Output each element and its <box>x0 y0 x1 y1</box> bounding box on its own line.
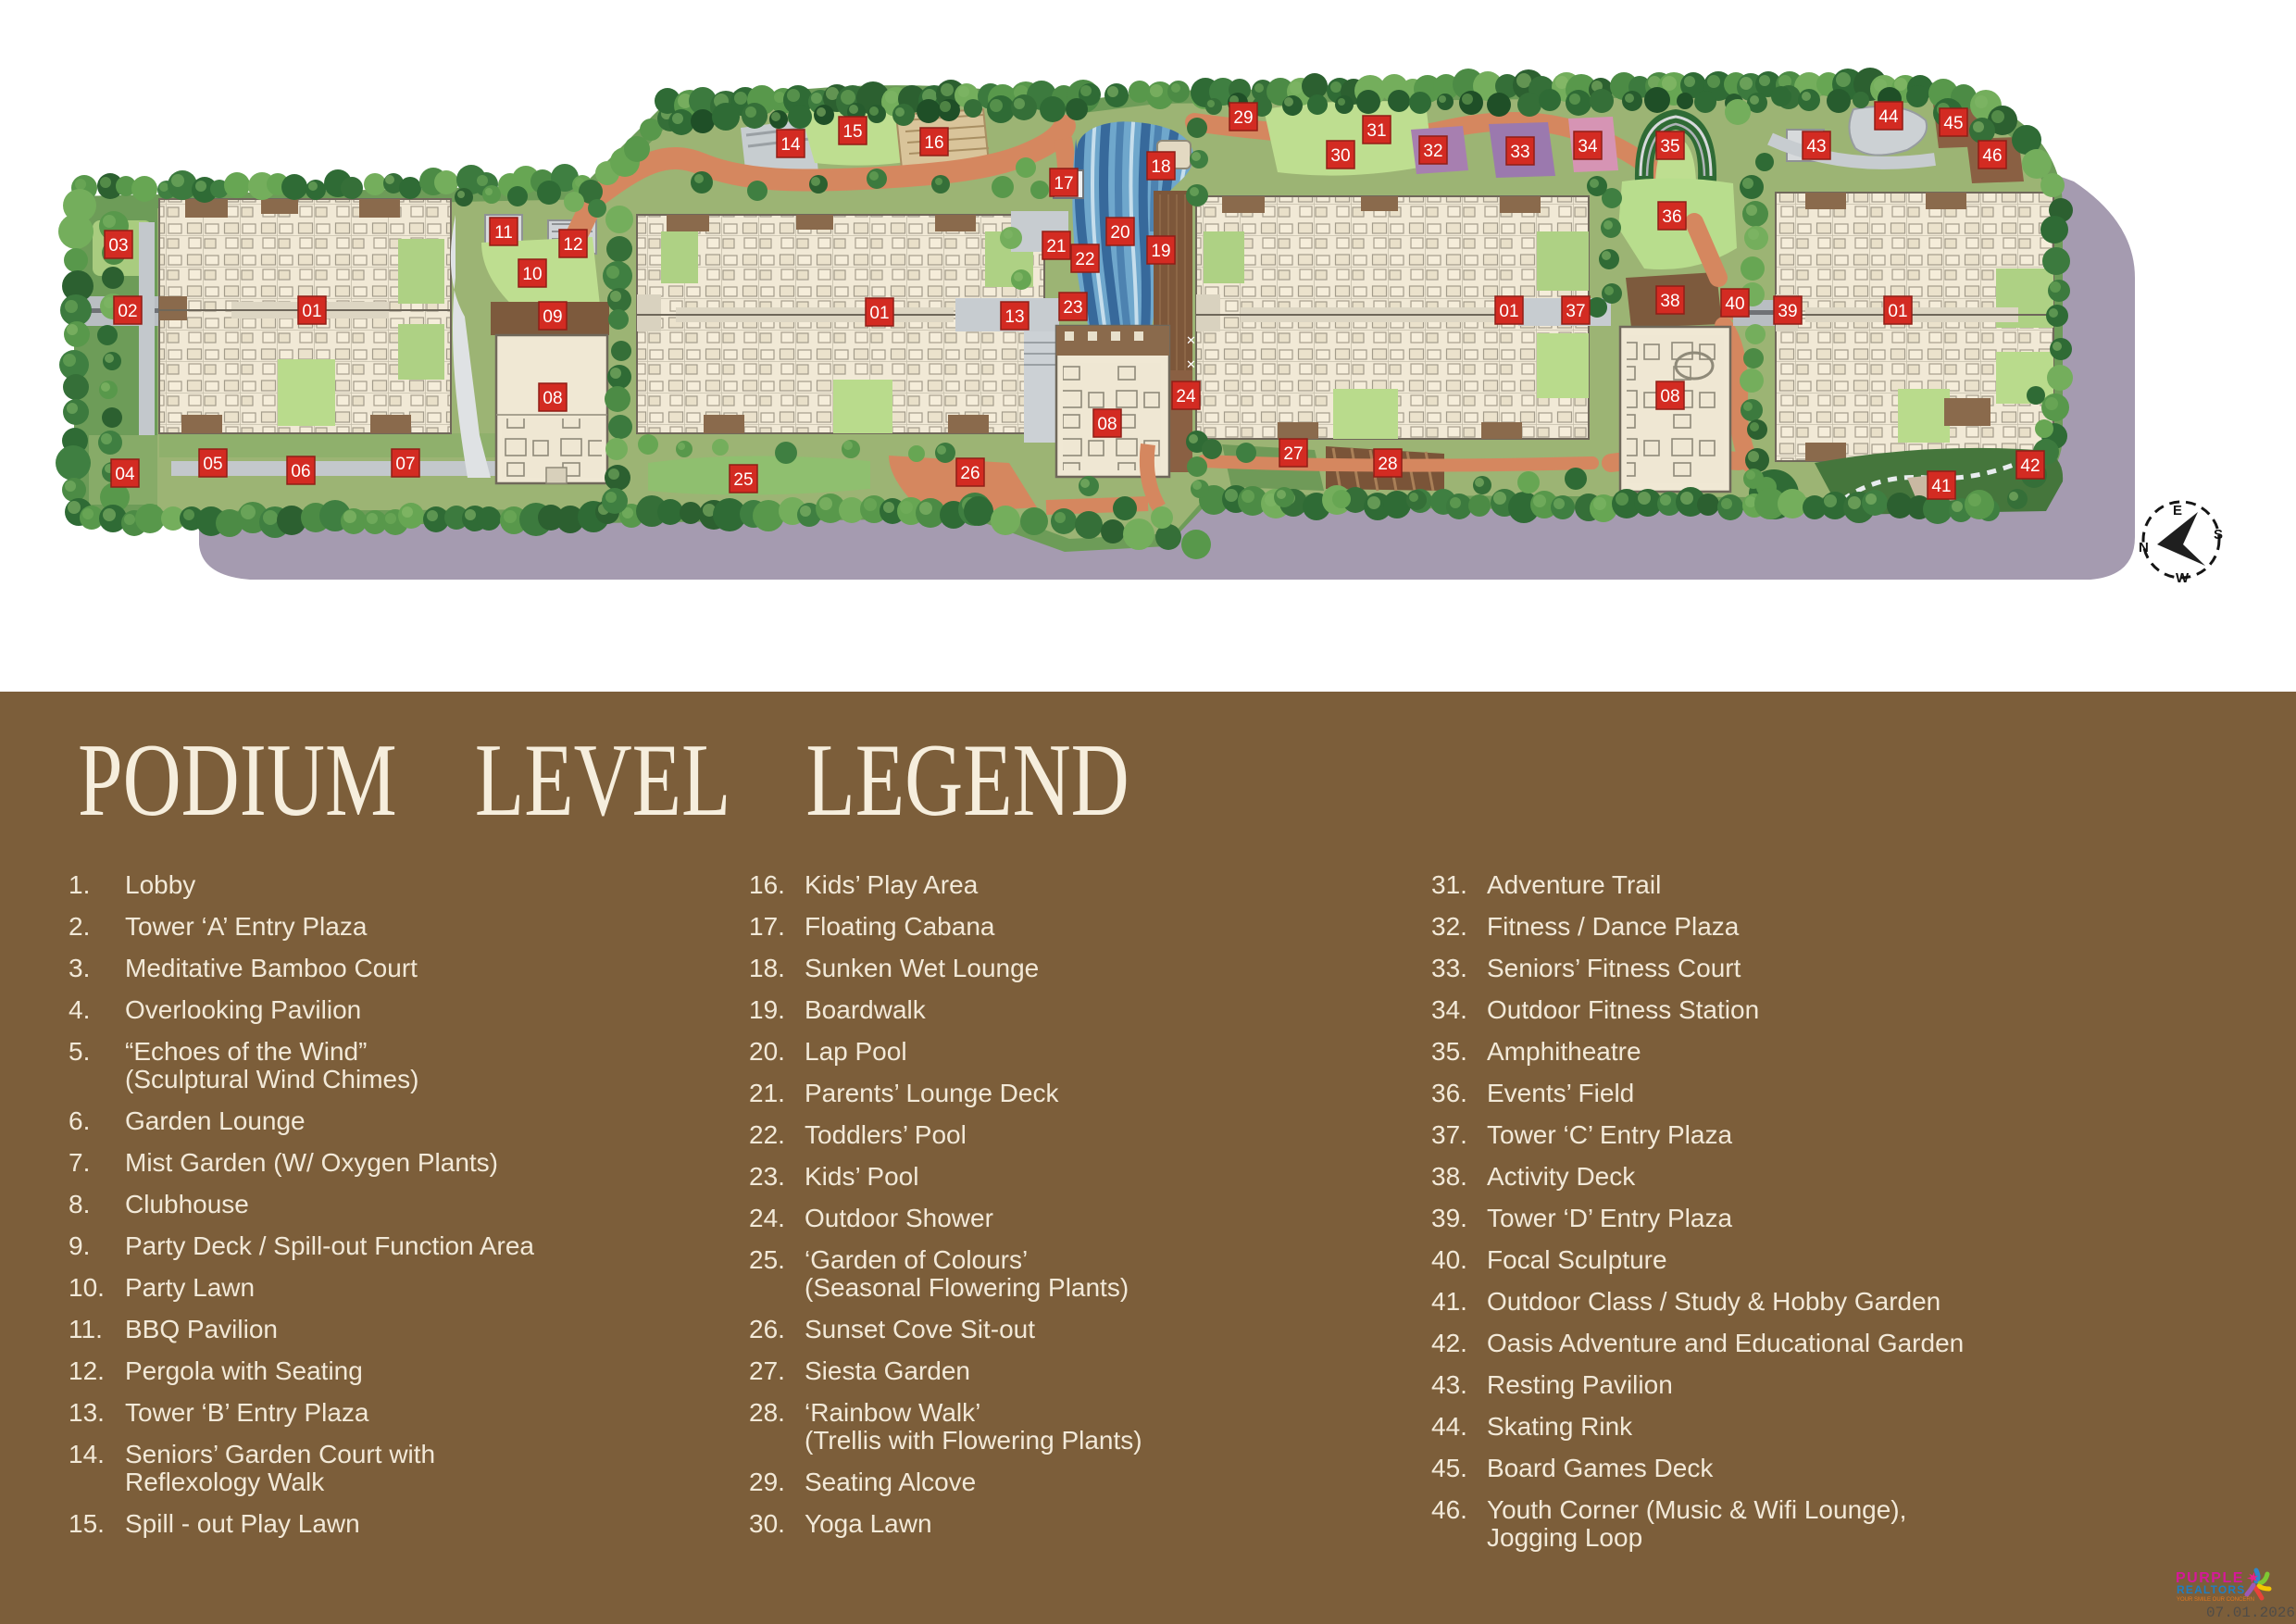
svg-text:08: 08 <box>543 389 562 408</box>
svg-text:01: 01 <box>869 304 889 323</box>
svg-text:13: 13 <box>1004 307 1024 327</box>
svg-text:01: 01 <box>1888 302 1907 321</box>
svg-text:40: 40 <box>1725 294 1744 314</box>
svg-text:21: 21 <box>1046 237 1066 256</box>
svg-text:01: 01 <box>302 302 321 321</box>
svg-text:25: 25 <box>733 470 753 490</box>
svg-text:36: 36 <box>1662 207 1681 227</box>
svg-text:03: 03 <box>108 236 128 256</box>
svg-text:10: 10 <box>522 265 542 284</box>
svg-text:22: 22 <box>1075 250 1094 269</box>
svg-text:06: 06 <box>291 462 310 481</box>
svg-text:37: 37 <box>1566 302 1585 321</box>
svg-text:43: 43 <box>1806 137 1826 156</box>
svg-text:26: 26 <box>960 464 980 483</box>
svg-text:02: 02 <box>118 302 137 321</box>
svg-text:41: 41 <box>1931 477 1951 496</box>
svg-text:08: 08 <box>1097 415 1117 434</box>
svg-text:07: 07 <box>395 455 415 474</box>
svg-text:30: 30 <box>1330 146 1350 166</box>
svg-text:33: 33 <box>1510 143 1529 162</box>
svg-text:12: 12 <box>563 235 582 255</box>
svg-text:09: 09 <box>543 307 562 327</box>
svg-text:31: 31 <box>1366 121 1386 141</box>
svg-text:E: E <box>2173 503 2182 518</box>
svg-text:45: 45 <box>1943 114 1963 133</box>
svg-text:29: 29 <box>1233 108 1253 128</box>
svg-text:23: 23 <box>1063 298 1082 318</box>
svg-text:34: 34 <box>1578 137 1598 156</box>
svg-text:04: 04 <box>115 465 135 484</box>
svg-text:18: 18 <box>1151 157 1170 177</box>
svg-text:39: 39 <box>1778 302 1797 321</box>
svg-text:YOUR SMILE OUR CONCERN: YOUR SMILE OUR CONCERN <box>2177 1597 2254 1603</box>
svg-text:32: 32 <box>1423 142 1442 161</box>
svg-text:REALTORS: REALTORS <box>2177 1583 2246 1596</box>
svg-text:14: 14 <box>780 135 801 155</box>
svg-text:08: 08 <box>1660 387 1679 406</box>
svg-text:15: 15 <box>842 122 862 142</box>
svg-text:46: 46 <box>1982 146 2002 166</box>
svg-text:N: N <box>2139 540 2149 556</box>
svg-text:28: 28 <box>1378 455 1397 474</box>
svg-text:38: 38 <box>1660 292 1679 311</box>
svg-text:19: 19 <box>1151 242 1170 261</box>
svg-text:42: 42 <box>2020 456 2040 476</box>
svg-text:✕: ✕ <box>1186 333 1196 347</box>
svg-text:24: 24 <box>1176 387 1196 406</box>
svg-text:35: 35 <box>1660 137 1679 156</box>
svg-text:16: 16 <box>924 133 943 153</box>
svg-text:17: 17 <box>1054 174 1073 194</box>
svg-text:27: 27 <box>1283 444 1303 464</box>
svg-text:20: 20 <box>1110 223 1129 243</box>
svg-text:✕: ✕ <box>1186 357 1196 371</box>
svg-text:11: 11 <box>494 223 513 243</box>
svg-text:05: 05 <box>203 455 222 474</box>
svg-text:S: S <box>2214 527 2223 543</box>
svg-text:W: W <box>2176 570 2190 586</box>
svg-text:44: 44 <box>1878 107 1899 127</box>
svg-text:01: 01 <box>1499 302 1518 321</box>
